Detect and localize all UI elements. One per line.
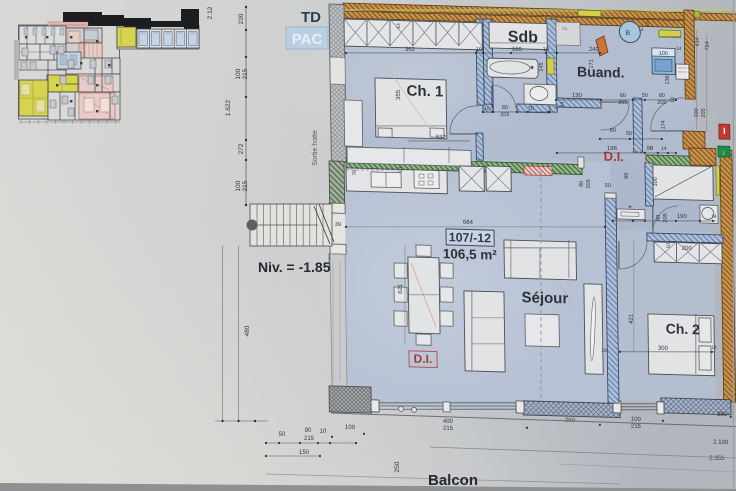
svg-text:50: 50 [642,93,648,99]
svg-text:200: 200 [682,246,693,252]
svg-text:Niv. = -1.85: Niv. = -1.85 [258,259,331,275]
svg-text:532: 532 [436,135,447,141]
svg-text:160: 160 [512,47,523,53]
svg-text:76: 76 [352,170,358,176]
svg-text:98: 98 [647,146,654,152]
svg-text:684: 684 [463,220,474,226]
svg-text:230: 230 [238,13,245,24]
svg-text:190: 190 [677,214,688,220]
svg-text:100: 100 [631,417,642,423]
svg-text:174: 174 [661,120,667,129]
svg-text:10: 10 [320,429,327,435]
svg-text:99: 99 [624,173,630,179]
svg-text:I: I [723,126,726,136]
svg-text:Séjour: Séjour [521,289,568,307]
svg-text:205: 205 [663,213,669,222]
svg-text:14: 14 [396,23,402,29]
svg-text:100: 100 [659,51,668,57]
svg-text:215: 215 [443,426,454,432]
svg-text:10: 10 [666,243,672,249]
svg-text:80: 80 [659,93,665,99]
svg-text:362: 362 [405,47,416,53]
svg-text:400: 400 [443,419,454,425]
svg-text:414: 414 [695,37,701,46]
svg-text:90: 90 [305,428,312,434]
svg-text:621: 621 [398,283,404,294]
svg-text:50: 50 [279,432,286,438]
svg-text:215: 215 [631,424,642,430]
svg-text:Sortie hotte: Sortie hotte [312,130,319,166]
svg-text:10: 10 [484,106,490,112]
svg-text:100: 100 [653,177,659,186]
svg-text:10: 10 [398,167,404,173]
svg-text:Ch. 1: Ch. 1 [406,82,443,100]
svg-text:14: 14 [711,345,717,351]
svg-text:TD: TD [301,9,321,26]
svg-text:10: 10 [476,47,482,53]
svg-text:D.I.: D.I. [604,149,624,165]
svg-text:300: 300 [658,346,669,352]
svg-text:245: 245 [539,62,545,71]
svg-text:250: 250 [394,461,401,472]
svg-text:205: 205 [500,112,509,118]
svg-text:2.100: 2.100 [713,440,729,446]
svg-text:150: 150 [299,450,310,456]
svg-text:50: 50 [626,131,632,137]
svg-text:80: 80 [656,215,662,221]
svg-text:14: 14 [661,146,667,152]
svg-text:215: 215 [242,68,249,79]
svg-text:2.355: 2.355 [709,456,725,462]
svg-text:80: 80 [610,128,616,134]
svg-text:Sdb: Sdb [508,29,539,47]
svg-text:130: 130 [572,93,583,99]
svg-text:Ch. 2: Ch. 2 [666,320,701,337]
svg-text:70: 70 [528,106,534,112]
svg-text:PAC: PAC [292,31,323,48]
svg-text:215: 215 [242,180,249,191]
svg-text:80: 80 [579,181,585,187]
svg-text:100: 100 [694,108,700,117]
svg-text:10: 10 [601,348,607,354]
svg-text:100: 100 [235,180,242,191]
svg-text:240: 240 [589,47,600,53]
svg-text:Buand.: Buand. [577,63,625,80]
svg-text:14: 14 [711,214,717,220]
svg-text:205: 205 [657,100,666,106]
svg-text:100: 100 [235,68,242,79]
svg-text:↓: ↓ [722,149,726,156]
svg-text:D.I.: D.I. [414,352,433,367]
svg-text:B: B [625,30,630,37]
svg-text:10: 10 [645,21,651,27]
svg-text:100: 100 [345,425,356,431]
svg-text:ML: ML [562,26,569,32]
svg-text:14: 14 [638,27,644,32]
svg-text:355: 355 [396,89,402,100]
svg-text:80: 80 [620,93,626,99]
svg-text:205: 205 [586,179,592,188]
svg-text:2.12: 2.12 [207,6,214,19]
svg-text:80: 80 [502,105,508,111]
svg-text:10: 10 [543,47,549,53]
svg-text:724: 724 [705,41,711,50]
svg-text:107/-12: 107/-12 [449,230,492,245]
svg-text:39: 39 [335,222,341,228]
svg-text:421: 421 [629,313,635,324]
svg-text:136: 136 [665,75,671,84]
svg-text:205: 205 [701,108,707,117]
svg-text:480: 480 [244,325,251,336]
svg-text:272: 272 [238,143,245,154]
svg-text:1.622: 1.622 [225,99,232,116]
svg-text:10: 10 [670,97,676,103]
svg-text:84: 84 [560,102,566,108]
svg-text:14: 14 [676,46,682,52]
svg-text:50: 50 [605,183,611,189]
svg-text:205: 205 [618,100,627,106]
svg-text:380: 380 [717,412,728,418]
svg-text:106,5 m²: 106,5 m² [443,246,498,263]
svg-text:215: 215 [304,436,315,442]
